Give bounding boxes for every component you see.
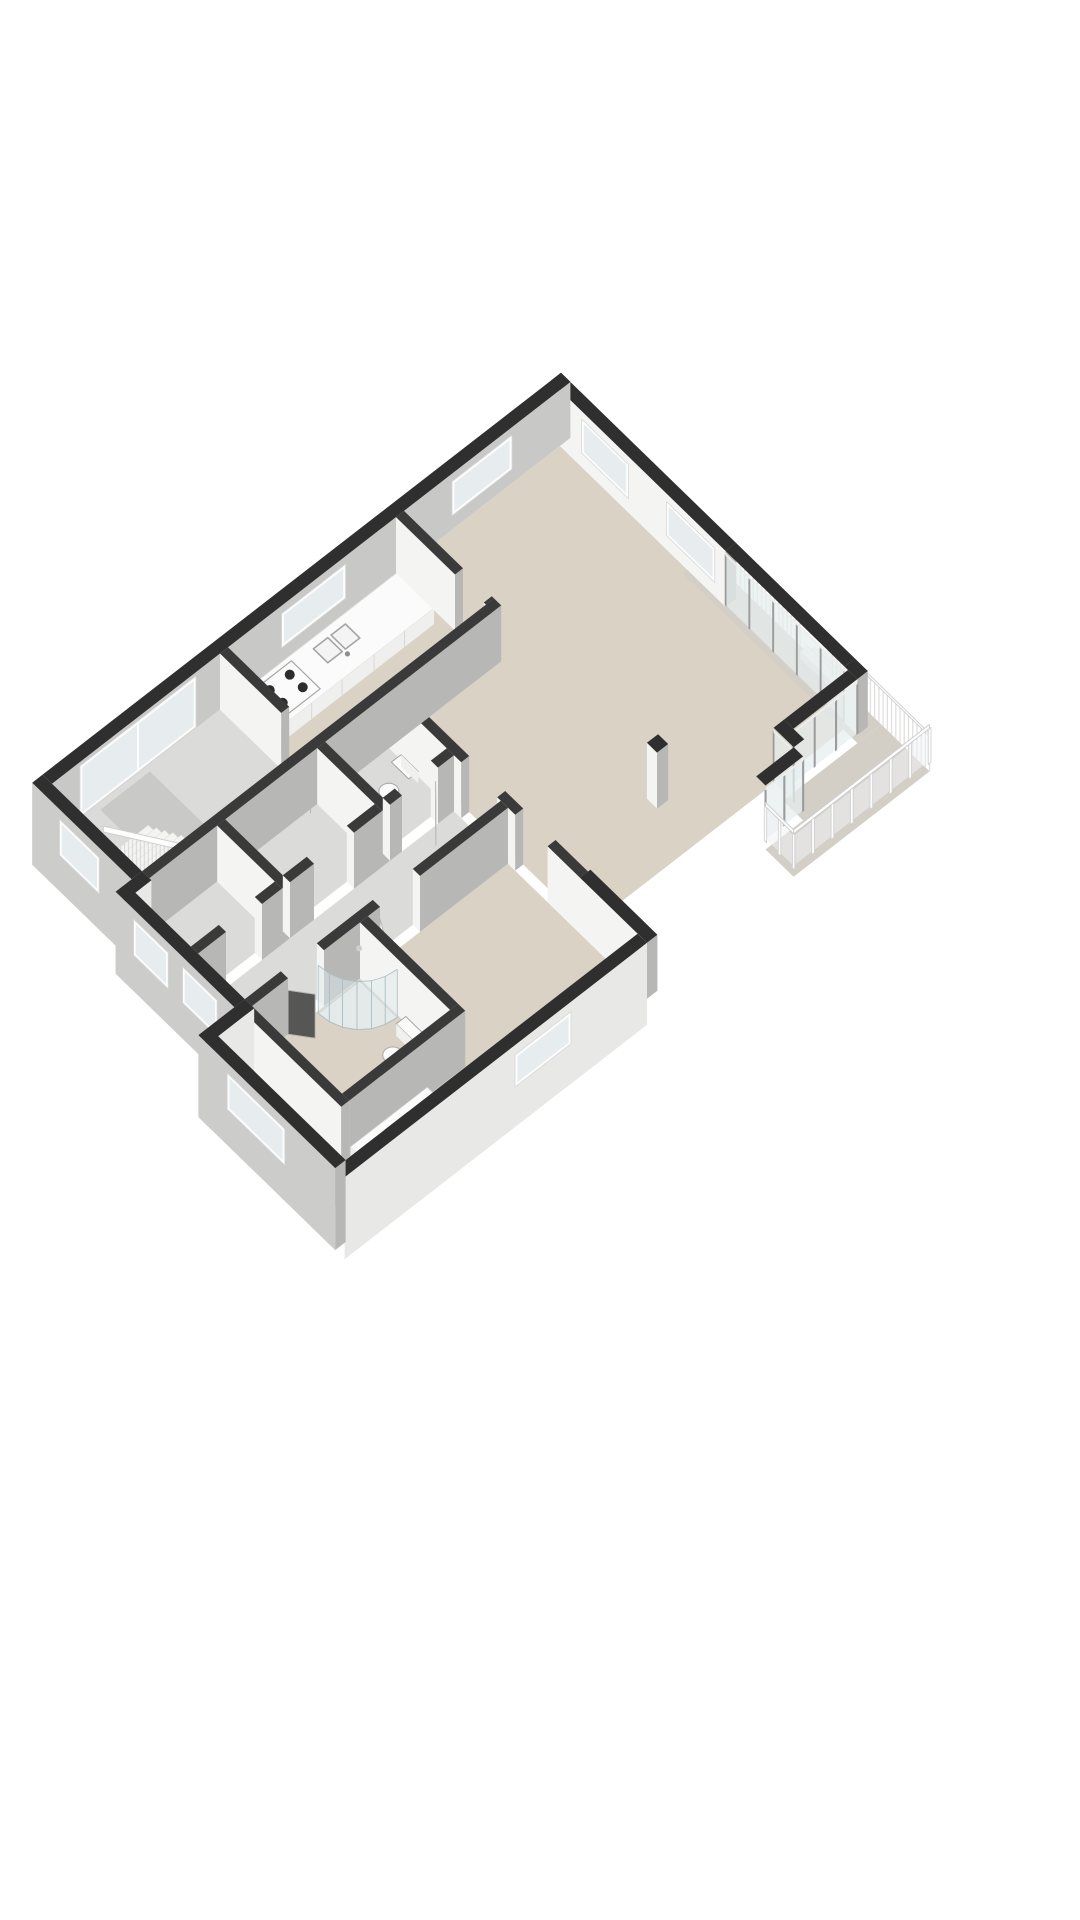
wall-face — [347, 826, 354, 889]
wall-face — [461, 756, 469, 818]
wall-face — [647, 935, 657, 999]
cooktop-burner — [285, 670, 295, 680]
wall-face — [390, 796, 402, 861]
shower-glass — [357, 981, 372, 1030]
wall-face — [431, 761, 438, 824]
glass-mullion — [835, 699, 837, 752]
balustrade-mullion — [778, 819, 781, 856]
cooktop-burner — [298, 682, 308, 692]
balustrade-mullion — [851, 788, 854, 825]
glass-mullion — [796, 623, 798, 676]
wall-face — [255, 897, 262, 960]
wall-face — [647, 743, 657, 809]
glass-mullion — [748, 577, 750, 630]
window-mullion — [137, 723, 139, 770]
glass-mullion — [856, 682, 858, 735]
wall-face — [383, 798, 390, 861]
wall-face — [335, 1160, 345, 1250]
shower-head — [356, 945, 362, 951]
balustrade-mullion — [812, 818, 815, 855]
glass-mullion — [725, 554, 727, 607]
balustrade-mullion — [928, 727, 931, 764]
wall-face — [657, 744, 668, 809]
door-leaf — [288, 990, 315, 1038]
shower-glass — [329, 974, 342, 1028]
wall-face — [455, 568, 463, 630]
wall-face — [283, 875, 290, 938]
wall-face — [515, 809, 523, 871]
glass-mullion — [783, 774, 785, 827]
floor-plan-3d — [0, 0, 1080, 1920]
shower-glass — [372, 977, 386, 1029]
glass-mullion — [772, 600, 774, 653]
shower-glass — [343, 979, 357, 1029]
balustrade-mullion — [870, 773, 873, 810]
shower-glass — [318, 965, 329, 1021]
shower-glass — [385, 969, 397, 1024]
balustrade-mullion — [909, 742, 912, 779]
glass-mullion — [814, 715, 816, 768]
sink-faucet — [345, 651, 350, 656]
floor-plan-page — [0, 0, 1080, 1920]
wall-face — [341, 1101, 349, 1163]
glass-mullion — [802, 760, 804, 813]
balustrade-mullion — [831, 803, 834, 840]
balustrade-mullion — [792, 833, 794, 870]
balustrade-mullion — [889, 758, 892, 795]
wall-face — [413, 869, 420, 932]
balustrade-mullion — [764, 805, 766, 842]
wall-face — [857, 671, 867, 735]
